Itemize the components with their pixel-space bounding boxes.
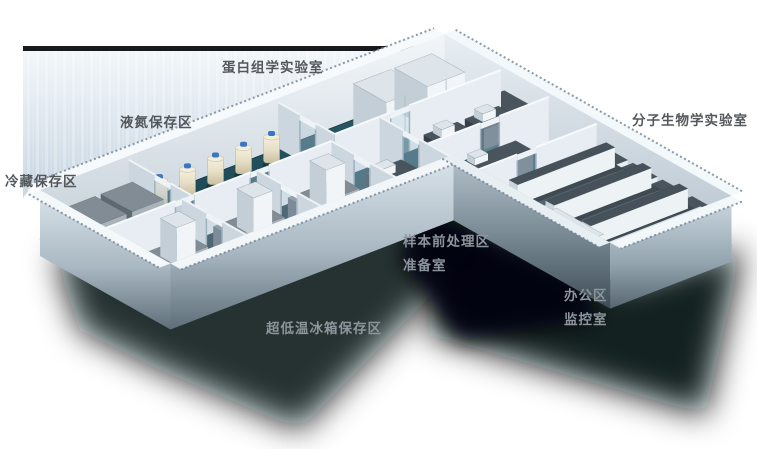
floorplan-3d-render — [0, 0, 757, 449]
area-label-office-area: 办公区 — [564, 284, 608, 304]
area-label-liquid-nitrogen-storage: 液氮保存区 — [120, 111, 193, 131]
area-label-cold-storage: 冷藏保存区 — [5, 170, 78, 190]
area-label-sample-preprocessing: 样本前处理区 — [403, 230, 490, 250]
area-label-proteomics-lab: 蛋白组学实验室 — [222, 56, 324, 76]
area-label-ult-freezer-storage: 超低温冰箱保存区 — [266, 317, 382, 337]
lab-floorplan-scene: 蛋白组学实验室 液氮保存区 冷藏保存区 分子生物学实验室 样本前处理区 准备室 … — [0, 0, 757, 449]
area-label-prep-room: 准备室 — [403, 254, 447, 274]
area-label-monitoring-room: 监控室 — [564, 308, 608, 328]
area-label-molecular-biology-lab: 分子生物学实验室 — [632, 109, 748, 129]
